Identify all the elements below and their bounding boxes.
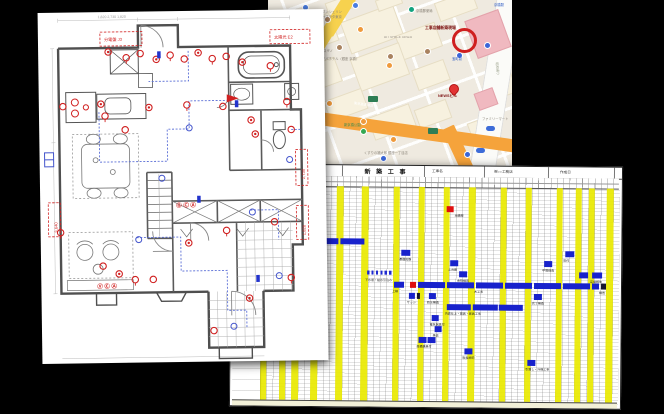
map-poi-icon bbox=[336, 44, 343, 51]
dimension-text: 3,640 bbox=[53, 222, 58, 233]
red-stamp-symbols: Ⓖ Ⓒ Ⓐ bbox=[176, 201, 196, 209]
gantt-task-bar bbox=[476, 283, 503, 289]
sofa-set bbox=[67, 232, 134, 291]
red-annotation-boxes bbox=[46, 29, 313, 243]
stairs bbox=[147, 174, 173, 236]
wiring-runs bbox=[98, 49, 304, 330]
map-poi-icon bbox=[390, 136, 397, 143]
map-place-label: 宝町駅 bbox=[452, 58, 462, 62]
gantt-task-label: 基礎配筋 bbox=[399, 256, 411, 261]
collage-canvas: ダンシェリンオブラタ東京AIT SPACE GINZAイデミ・スギノアパホテル〈… bbox=[0, 0, 664, 414]
map-place-label: 京橋駅 bbox=[494, 4, 504, 8]
outlet-symbol-icon bbox=[102, 113, 108, 119]
gantt-holiday-stripe bbox=[442, 187, 450, 403]
gantt-task-bar bbox=[429, 293, 437, 299]
gantt-task-label: 吹付 bbox=[563, 258, 569, 263]
gantt-task-label: 検査 bbox=[599, 291, 605, 296]
gantt-task-bar bbox=[534, 283, 561, 289]
outlet-symbol-dot bbox=[107, 51, 109, 53]
dimension-text: 1,820 2,730 1,820 bbox=[98, 15, 126, 19]
gantt-title: 新 築 工 事 bbox=[348, 166, 424, 176]
window-symbol bbox=[45, 153, 54, 167]
outlet-symbol-icon bbox=[60, 103, 66, 109]
outlet-symbol-icon bbox=[181, 56, 187, 62]
gantt-holiday-stripe bbox=[574, 188, 582, 404]
gantt-task-bar bbox=[505, 283, 532, 289]
map-place-label: アパホテル〈銀座 京橋〉 bbox=[322, 58, 359, 62]
gantt-task-bar bbox=[563, 283, 590, 289]
switch-symbol-icon bbox=[256, 275, 260, 282]
gantt-task-bar bbox=[432, 315, 440, 321]
outlet-symbol-icon bbox=[211, 327, 217, 333]
gantt-task-bar bbox=[459, 272, 467, 278]
gantt-holiday-stripe bbox=[587, 188, 595, 404]
map-poi-icon bbox=[360, 118, 367, 125]
gantt-task-bar bbox=[418, 282, 445, 288]
outlet-symbol-icon bbox=[267, 63, 273, 69]
gantt-task-bar bbox=[447, 206, 453, 212]
gantt-task-label: 完了検査 bbox=[532, 301, 544, 306]
gantt-task-bar bbox=[465, 348, 473, 354]
interior-walls bbox=[145, 45, 303, 292]
gantt-task-bar bbox=[447, 282, 474, 288]
gantt-task-bar bbox=[544, 261, 552, 267]
switch-symbol-icon bbox=[157, 51, 161, 58]
gantt-holiday-stripe bbox=[555, 188, 563, 404]
gantt-holiday-stripe bbox=[335, 186, 343, 402]
gantt-task-bar bbox=[367, 271, 392, 275]
gantt-header-divider bbox=[614, 168, 615, 179]
outlet-symbol-dot bbox=[100, 103, 102, 105]
gantt-task-bar bbox=[527, 359, 535, 365]
gantt-holiday-stripe bbox=[605, 189, 613, 405]
outlet-symbol-icon bbox=[167, 52, 173, 58]
gantt-task-label: サッシ bbox=[407, 300, 416, 305]
tile-floor-grid bbox=[208, 221, 295, 347]
map-place-label: ファミリーマート bbox=[482, 118, 508, 122]
kitchen-fixtures bbox=[65, 49, 153, 122]
outlet-symbol-icon bbox=[223, 227, 229, 233]
map-route-shield-icon bbox=[368, 96, 378, 102]
gantt-holiday-stripe bbox=[392, 187, 400, 403]
map-poi-icon bbox=[352, 2, 359, 9]
map-poi-icon bbox=[464, 151, 471, 158]
junction-symbol-icon bbox=[249, 209, 255, 215]
map-place-label: 工事店舗新築現場 bbox=[425, 26, 456, 30]
gantt-task-bar bbox=[579, 273, 588, 279]
outlet-symbol-dot bbox=[148, 106, 150, 108]
floor-plan-page[interactable]: 分電盤 J3太陽光 E22,7301,8203,640Ⓖ Ⓒ ⒶⓋ Ⓒ Ⓐ1,8… bbox=[38, 9, 329, 364]
gantt-holiday-stripe bbox=[360, 186, 368, 402]
outlet-symbol-dot bbox=[197, 52, 199, 54]
map-poi-icon bbox=[380, 155, 387, 162]
gantt-task-bar bbox=[565, 251, 574, 257]
gantt-header-divider bbox=[342, 165, 343, 176]
junction-symbol-icon bbox=[136, 237, 142, 243]
map-poi-icon bbox=[357, 26, 364, 33]
junction-symbol-icon bbox=[287, 156, 293, 162]
gantt-task-label: 木工事 bbox=[474, 290, 483, 295]
map-poi-icon bbox=[424, 48, 431, 55]
gantt-header-field: ㈱○○工務店 bbox=[494, 169, 513, 175]
gantt-task-label: 土台敷 bbox=[448, 268, 457, 273]
dimension-text: 2,730 bbox=[301, 168, 306, 179]
outlet-symbol-icon bbox=[150, 276, 156, 282]
gantt-header-field: 作成日 bbox=[560, 169, 571, 174]
bathroom-fixtures bbox=[230, 51, 299, 149]
outlet-symbol-icon bbox=[122, 127, 128, 133]
dining-table bbox=[72, 134, 139, 199]
gantt-header-field: 工事名 bbox=[432, 168, 443, 173]
gantt-task-bar bbox=[419, 337, 427, 343]
gantt-holiday-stripe bbox=[524, 188, 532, 404]
switch-symbol-icon bbox=[197, 196, 201, 203]
gantt-task-bar bbox=[417, 293, 420, 299]
gantt-task-bar bbox=[601, 284, 606, 290]
map-poi-icon bbox=[360, 128, 367, 135]
gantt-holiday-stripe bbox=[499, 188, 507, 404]
outlet-symbol-dot bbox=[250, 119, 252, 121]
gantt-task-label: 上棟 bbox=[392, 289, 398, 294]
map-road-number-icon bbox=[476, 148, 485, 153]
gantt-task-bar bbox=[435, 326, 443, 332]
gantt-task-bar bbox=[394, 282, 404, 288]
map-poi-icon bbox=[408, 6, 415, 13]
gantt-task-bar bbox=[447, 304, 472, 310]
gantt-task-label: 地鎮祭 bbox=[455, 213, 464, 218]
gantt-task-bar bbox=[450, 261, 458, 267]
gantt-task-label: 防水検査 bbox=[427, 300, 439, 305]
switch-symbol-icon bbox=[235, 100, 239, 107]
gantt-task-bar bbox=[592, 284, 600, 290]
map-place-label: ダンシェリン bbox=[322, 11, 342, 15]
map-road-number-icon bbox=[486, 126, 495, 131]
gantt-header-divider bbox=[424, 166, 425, 177]
construction-site-circle-annotation bbox=[452, 28, 477, 53]
gantt-header-divider bbox=[548, 167, 549, 178]
map-route-shield-icon bbox=[428, 128, 438, 134]
gantt-task-bar bbox=[428, 337, 436, 343]
gantt-task-label: 取扱説明 bbox=[462, 355, 474, 360]
gantt-task-label: 中間検査 bbox=[542, 268, 554, 273]
gantt-task-label: 設備器具付 bbox=[417, 344, 432, 349]
gantt-task-bar bbox=[401, 249, 410, 255]
outlet-symbol-dot bbox=[118, 273, 120, 275]
map-poi-icon bbox=[484, 42, 491, 49]
map-poi-icon bbox=[386, 62, 393, 69]
outlet-symbol-dot bbox=[188, 242, 190, 244]
map-place-label: くすりの福太郎 銀座一丁目店 bbox=[364, 152, 408, 156]
map-poi-icon bbox=[387, 53, 394, 60]
gantt-task-label: 下水道・給水引込み bbox=[365, 278, 392, 283]
outlet-symbol-icon bbox=[209, 55, 215, 61]
gantt-task-label: 引渡し・外構工事 bbox=[525, 366, 549, 371]
map-place-label: AIT SPACE GINZA bbox=[384, 36, 412, 40]
map-place-label: 京橋郵便局 bbox=[416, 10, 433, 14]
map-place-label: 新京橋公園 bbox=[344, 124, 361, 128]
gantt-task-bar bbox=[499, 305, 524, 311]
gantt-task-bar bbox=[340, 238, 364, 244]
red-stamp-symbols: Ⓥ Ⓒ Ⓐ bbox=[97, 282, 117, 290]
gantt-task-bar bbox=[473, 304, 498, 310]
outlet-symbol-dot bbox=[254, 133, 256, 135]
map-place-label: オブラタ東京 bbox=[322, 16, 342, 20]
gantt-header-divider bbox=[484, 167, 485, 178]
gantt-task-bar bbox=[592, 273, 602, 279]
gantt-task-bar bbox=[409, 293, 415, 299]
gantt-task-label: 内装仕上・建具・家具工事 bbox=[445, 311, 481, 316]
annotation-text: 太陽光 E2 bbox=[274, 33, 294, 40]
outlet-symbol-dot bbox=[155, 58, 157, 60]
gantt-holiday-stripe bbox=[467, 187, 475, 403]
annotation-text: 分電盤 J3 bbox=[104, 36, 123, 43]
floor-plan-drawing: 分電盤 J3太陽光 E22,7301,8203,640Ⓖ Ⓒ ⒶⓋ Ⓒ Ⓐ1,8… bbox=[38, 9, 329, 364]
dimension-text: 1,820 bbox=[302, 224, 307, 235]
gantt-task-bar bbox=[410, 282, 416, 288]
map-poi-icon bbox=[326, 100, 333, 107]
gantt-task-bar bbox=[534, 294, 542, 300]
